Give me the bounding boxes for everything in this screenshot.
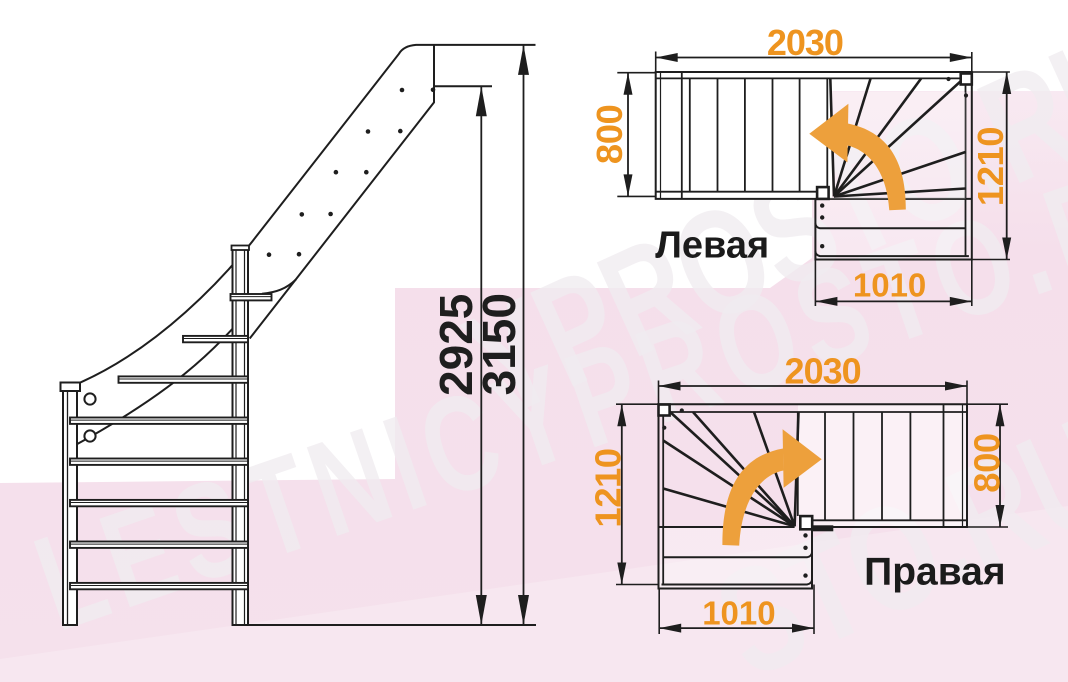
svg-text:Левая: Левая bbox=[655, 225, 769, 267]
svg-text:800: 800 bbox=[967, 433, 1008, 492]
svg-text:3150: 3150 bbox=[473, 293, 525, 395]
svg-text:Правая: Правая bbox=[864, 551, 1005, 594]
svg-text:1010: 1010 bbox=[702, 595, 775, 632]
svg-text:1210: 1210 bbox=[588, 448, 629, 527]
svg-text:1210: 1210 bbox=[970, 127, 1011, 206]
svg-text:800: 800 bbox=[589, 105, 630, 164]
svg-text:2030: 2030 bbox=[767, 22, 843, 63]
svg-text:1010: 1010 bbox=[853, 267, 926, 304]
svg-text:2030: 2030 bbox=[785, 351, 861, 392]
